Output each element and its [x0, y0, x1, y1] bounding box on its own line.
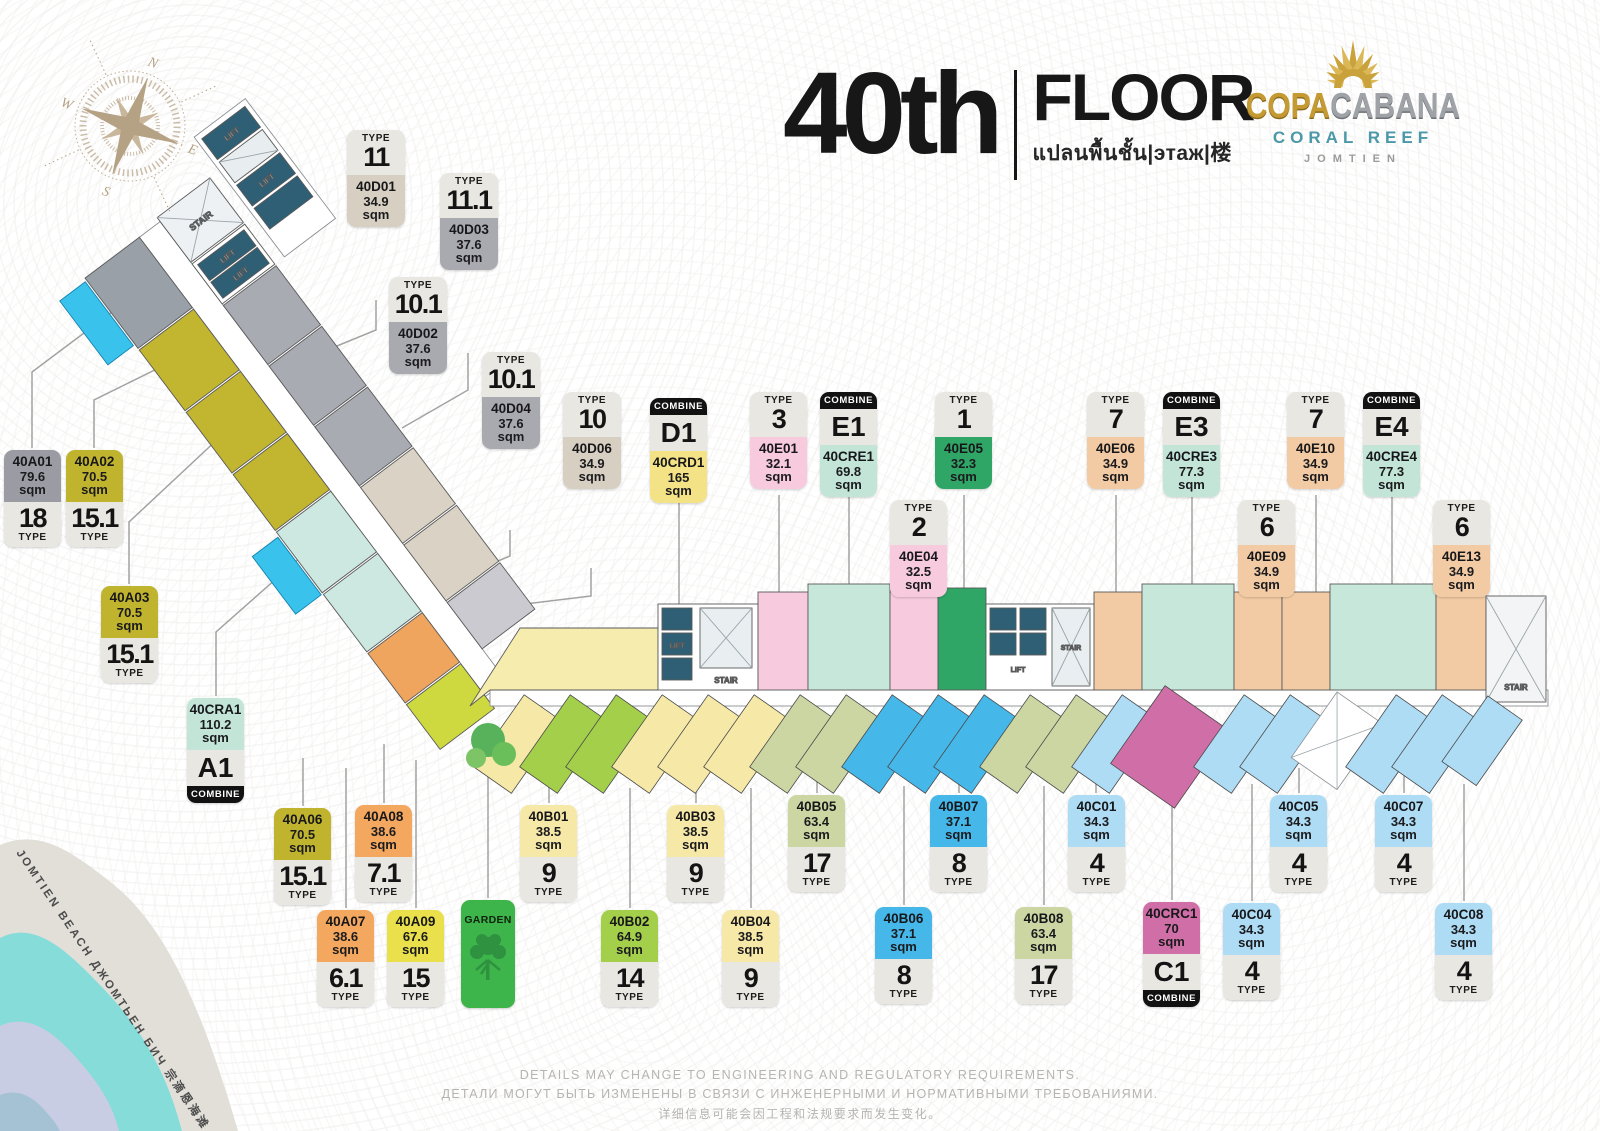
- unit-id: 40D04: [483, 401, 539, 416]
- unit-label-40A08: 40A08 38.6 sqm 7.1 TYPE: [355, 805, 412, 902]
- unit-label-40D01: TYPE 11 40D01 34.9 sqm: [347, 130, 405, 227]
- unit-area-unit: sqm: [821, 478, 876, 492]
- unit-id: 40A01: [5, 454, 60, 469]
- compass-e: E: [185, 141, 200, 159]
- unit-id: 40D01: [348, 179, 404, 194]
- unit-id: 40A02: [67, 454, 122, 469]
- type-word: TYPE: [356, 887, 411, 898]
- type-word: TYPE: [1224, 985, 1279, 996]
- type-number: 6.1: [318, 965, 373, 992]
- unit-id: 40C05: [1271, 799, 1326, 814]
- combine-code: A1: [188, 753, 243, 782]
- unit-label-40C01: 40C01 34.3 sqm 4 TYPE: [1068, 795, 1125, 892]
- type-number: 2: [891, 514, 946, 541]
- unit-id: 40CRE4: [1364, 449, 1419, 464]
- unit-label-40E09: TYPE 6 40E09 34.9 sqm: [1238, 500, 1295, 597]
- type-number: 15.1: [67, 505, 122, 532]
- unit-id: 40B06: [876, 911, 931, 926]
- unit-label-40D06: TYPE 10 40D06 34.9 sqm: [563, 392, 621, 489]
- type-number: 9: [521, 860, 576, 887]
- unit-label-40B08: 40B08 63.4 sqm 17 TYPE: [1015, 907, 1072, 1004]
- unit-area-unit: sqm: [1376, 828, 1431, 842]
- unit-id: 40A08: [356, 809, 411, 824]
- combine-code: E4: [1364, 412, 1419, 441]
- unit-id: 40E09: [1239, 549, 1294, 564]
- unit-id: 40CRE3: [1164, 449, 1219, 464]
- unit-area-unit: sqm: [1069, 828, 1124, 842]
- unit-area-unit: sqm: [1434, 578, 1489, 592]
- compass-s: S: [100, 184, 112, 200]
- unit-id: 40A06: [275, 812, 330, 827]
- type-word: TYPE: [876, 989, 931, 1000]
- unit-id: 40D02: [390, 326, 446, 341]
- type-number: 11: [348, 144, 404, 171]
- unit-label-40B05: 40B05 63.4 sqm 17 TYPE: [788, 795, 845, 892]
- unit-label-40A01: 40A01 79.6 sqm 18 TYPE: [4, 450, 61, 547]
- combine-flag: COMBINE: [187, 786, 244, 803]
- type-number: 10.1: [483, 366, 539, 393]
- unit-label-40E01: TYPE 3 40E01 32.1 sqm: [750, 392, 807, 489]
- unit-id: 40D03: [441, 222, 497, 237]
- unit-id: 40A03: [102, 590, 157, 605]
- unit-id: 40CRC1: [1144, 906, 1199, 921]
- unit-label-40C08: 40C08 34.3 sqm 4 TYPE: [1435, 903, 1492, 1000]
- unit-label-40C07: 40C07 34.3 sqm 4 TYPE: [1375, 795, 1432, 892]
- unit-area-unit: sqm: [67, 483, 122, 497]
- type-word: TYPE: [789, 877, 844, 888]
- unit-id: 40E13: [1434, 549, 1489, 564]
- unit-area-unit: sqm: [1016, 940, 1071, 954]
- type-word: TYPE: [1271, 877, 1326, 888]
- unit-id: 40B04: [723, 914, 778, 929]
- unit-id: 40E05: [936, 441, 991, 456]
- type-number: 4: [1271, 850, 1326, 877]
- unit-label-40C05: 40C05 34.3 sqm 4 TYPE: [1270, 795, 1327, 892]
- garden-word: GARDEN: [461, 914, 515, 926]
- disclaimer-en: DETAILS MAY CHANGE TO ENGINEERING AND RE…: [0, 1068, 1600, 1082]
- combine-flag: COMBINE: [1143, 990, 1200, 1007]
- type-number: 6: [1239, 514, 1294, 541]
- lift-label: LIFT: [1011, 667, 1026, 674]
- unit-id: 40C01: [1069, 799, 1124, 814]
- type-number: 15.1: [275, 863, 330, 890]
- unit-label-40A03: 40A03 70.5 sqm 15.1 TYPE: [101, 586, 158, 683]
- unit-area-unit: sqm: [1088, 470, 1143, 484]
- disclaimer-cn: 详细信息可能会因工程和法规要求而发生变化。: [0, 1105, 1600, 1122]
- type-number: 18: [5, 505, 60, 532]
- unit-area-unit: sqm: [483, 430, 539, 444]
- unit-area-unit: sqm: [348, 208, 404, 222]
- type-word: TYPE: [275, 890, 330, 901]
- unit-area-unit: sqm: [5, 483, 60, 497]
- unit-area-unit: sqm: [668, 838, 723, 852]
- compass-n: N: [145, 55, 160, 73]
- unit-area-unit: sqm: [602, 943, 657, 957]
- type-number: 9: [723, 965, 778, 992]
- unit-area-unit: sqm: [388, 943, 443, 957]
- type-number: 4: [1069, 850, 1124, 877]
- unit-label-40B01: 40B01 38.5 sqm 9 TYPE: [520, 805, 577, 902]
- combine-flag: COMBINE: [820, 392, 877, 409]
- type-word: TYPE: [67, 532, 122, 543]
- unit-area-unit: sqm: [521, 838, 576, 852]
- type-number: 4: [1224, 958, 1279, 985]
- unit-id: 40CRA1: [188, 702, 243, 717]
- unit-label-40D03: TYPE 11.1 40D03 37.6 sqm: [440, 173, 498, 270]
- stair-label: STAIR: [1061, 645, 1081, 652]
- type-number: 8: [931, 850, 986, 877]
- unit-label-40A07: 40A07 38.6 sqm 6.1 TYPE: [317, 910, 374, 1007]
- unit-area-unit: sqm: [1436, 936, 1491, 950]
- type-number: 14: [602, 965, 657, 992]
- type-number: 15.1: [102, 641, 157, 668]
- combine-flag: COMBINE: [1363, 392, 1420, 409]
- unit-area-unit: sqm: [751, 470, 806, 484]
- unit-label-40E13: TYPE 6 40E13 34.9 sqm: [1433, 500, 1490, 597]
- unit-label-40B04: 40B04 38.5 sqm 9 TYPE: [722, 910, 779, 1007]
- combine-flag: COMBINE: [650, 398, 707, 415]
- unit-area-unit: sqm: [891, 578, 946, 592]
- unit-label-40CRD1: COMBINED1 40CRD1 165 sqm: [650, 398, 707, 503]
- type-number: 9: [668, 860, 723, 887]
- unit-id: 40B01: [521, 809, 576, 824]
- unit-area-unit: sqm: [102, 619, 157, 633]
- combine-code: E3: [1164, 412, 1219, 441]
- type-number: 8: [876, 962, 931, 989]
- type-number: 10: [564, 406, 620, 433]
- type-number: 7.1: [356, 860, 411, 887]
- unit-label-40CRC1: 40CRC1 70 sqmC1COMBINE: [1143, 902, 1200, 1007]
- unit-id: 40E01: [751, 441, 806, 456]
- unit-area-unit: sqm: [356, 838, 411, 852]
- unit-label-40A09: 40A09 67.6 sqm 15 TYPE: [387, 910, 444, 1007]
- unit-label-40CRA1: 40CRA1 110.2 sqmA1COMBINE: [187, 698, 244, 803]
- unit-area-unit: sqm: [1271, 828, 1326, 842]
- unit-id: 40E06: [1088, 441, 1143, 456]
- stair-label: STAIR: [1504, 683, 1528, 692]
- unit-label-40A02: 40A02 70.5 sqm 15.1 TYPE: [66, 450, 123, 547]
- unit-label-40B03: 40B03 38.5 sqm 9 TYPE: [667, 805, 724, 902]
- unit-id: 40B05: [789, 799, 844, 814]
- unit-id: 40A07: [318, 914, 373, 929]
- type-word: TYPE: [723, 992, 778, 1003]
- unit-area-unit: sqm: [188, 731, 243, 745]
- unit-area-unit: sqm: [275, 841, 330, 855]
- unit-label-40D02: TYPE 10.1 40D02 37.6 sqm: [389, 277, 447, 374]
- unit-label-40C04: 40C04 34.3 sqm 4 TYPE: [1223, 903, 1280, 1000]
- unit-label-40E10: TYPE 7 40E10 34.9 sqm: [1287, 392, 1344, 489]
- type-number: 15: [388, 965, 443, 992]
- type-word: TYPE: [1069, 877, 1124, 888]
- unit-label-40CRE1: COMBINEE1 40CRE1 69.8 sqm: [820, 392, 877, 497]
- wing-east: LIFT STAIR LIFT STAIR: [470, 584, 1548, 706]
- type-number: 4: [1376, 850, 1431, 877]
- page: JOMTIEN BEACH ДЖОМТЬЕН БИЧ 宗滴恩海滩: [0, 0, 1600, 1131]
- unit-label-40B07: 40B07 37.1 sqm 8 TYPE: [930, 795, 987, 892]
- unit-id: 40A09: [388, 914, 443, 929]
- garden-label: GARDEN: [461, 900, 515, 1008]
- unit-label-40E04: TYPE 2 40E04 32.5 sqm: [890, 500, 947, 597]
- unit-id: 40E04: [891, 549, 946, 564]
- type-word: TYPE: [521, 887, 576, 898]
- type-word: TYPE: [1016, 989, 1071, 1000]
- unit-label-40E05: TYPE 1 40E05 32.3 sqm: [935, 392, 992, 489]
- unit-area-unit: sqm: [1164, 478, 1219, 492]
- type-word: TYPE: [5, 532, 60, 543]
- type-number: 17: [1016, 962, 1071, 989]
- unit-area-unit: sqm: [931, 828, 986, 842]
- unit-area-unit: sqm: [1224, 936, 1279, 950]
- unit-area-unit: sqm: [1364, 478, 1419, 492]
- unit-area-unit: sqm: [1239, 578, 1294, 592]
- type-number: 10.1: [390, 291, 446, 318]
- type-word: TYPE: [102, 668, 157, 679]
- type-word: TYPE: [668, 887, 723, 898]
- unit-id: 40B08: [1016, 911, 1071, 926]
- unit-id: 40E10: [1288, 441, 1343, 456]
- unit-id: 40B03: [668, 809, 723, 824]
- unit-area-unit: sqm: [390, 355, 446, 369]
- unit-area-unit: sqm: [651, 484, 706, 498]
- combine-code: D1: [651, 418, 706, 447]
- unit-id: 40C04: [1224, 907, 1279, 922]
- unit-id: 40C08: [1436, 907, 1491, 922]
- combine-code: E1: [821, 412, 876, 441]
- unit-id: 40C07: [1376, 799, 1431, 814]
- unit-label-40D04: TYPE 10.1 40D04 37.6 sqm: [482, 352, 540, 449]
- type-word: TYPE: [318, 992, 373, 1003]
- disclaimer-ru: ДЕТАЛИ МОГУТ БЫТЬ ИЗМЕНЕНЫ В СВЯЗИ С ИНЖ…: [0, 1087, 1600, 1101]
- unit-id: 40B02: [602, 914, 657, 929]
- unit-id: 40D06: [564, 441, 620, 456]
- lift-label: LIFT: [670, 643, 685, 650]
- type-number: 7: [1288, 406, 1343, 433]
- type-word: TYPE: [1376, 877, 1431, 888]
- unit-id: 40CRE1: [821, 449, 876, 464]
- unit-area-unit: sqm: [1144, 935, 1199, 949]
- floor-plan-graphic: STAIR LIFT LIFT LIFT LIFT: [0, 0, 1600, 1131]
- unit-label-40A06: 40A06 70.5 sqm 15.1 TYPE: [274, 808, 331, 905]
- unit-area-unit: sqm: [936, 470, 991, 484]
- unit-label-40CRE4: COMBINEE4 40CRE4 77.3 sqm: [1363, 392, 1420, 497]
- type-number: 1: [936, 406, 991, 433]
- unit-area-unit: sqm: [789, 828, 844, 842]
- combine-flag: COMBINE: [1163, 392, 1220, 409]
- unit-label-40B06: 40B06 37.1 sqm 8 TYPE: [875, 907, 932, 1004]
- combine-code: C1: [1144, 957, 1199, 986]
- type-number: 3: [751, 406, 806, 433]
- unit-area-unit: sqm: [564, 470, 620, 484]
- unit-area-unit: sqm: [1288, 470, 1343, 484]
- type-word: TYPE: [388, 992, 443, 1003]
- unit-label-40CRE3: COMBINEE3 40CRE3 77.3 sqm: [1163, 392, 1220, 497]
- unit-label-40B02: 40B02 64.9 sqm 14 TYPE: [601, 910, 658, 1007]
- stair-label: STAIR: [714, 676, 738, 685]
- unit-id: 40CRD1: [651, 455, 706, 470]
- disclaimer: DETAILS MAY CHANGE TO ENGINEERING AND RE…: [0, 1068, 1600, 1122]
- compass-w: W: [58, 95, 75, 114]
- unit-area-unit: sqm: [441, 251, 497, 265]
- type-word: TYPE: [602, 992, 657, 1003]
- compass-rose: N E S W: [40, 30, 220, 220]
- unit-area-unit: sqm: [876, 940, 931, 954]
- type-number: 11.1: [441, 187, 497, 214]
- type-word: TYPE: [1436, 985, 1491, 996]
- type-number: 7: [1088, 406, 1143, 433]
- tree-icon: [466, 930, 510, 982]
- unit-label-40E06: TYPE 7 40E06 34.9 sqm: [1087, 392, 1144, 489]
- type-number: 17: [789, 850, 844, 877]
- type-word: TYPE: [931, 877, 986, 888]
- unit-id: 40B07: [931, 799, 986, 814]
- type-number: 6: [1434, 514, 1489, 541]
- unit-area-unit: sqm: [723, 943, 778, 957]
- unit-area-unit: sqm: [318, 943, 373, 957]
- type-number: 4: [1436, 958, 1491, 985]
